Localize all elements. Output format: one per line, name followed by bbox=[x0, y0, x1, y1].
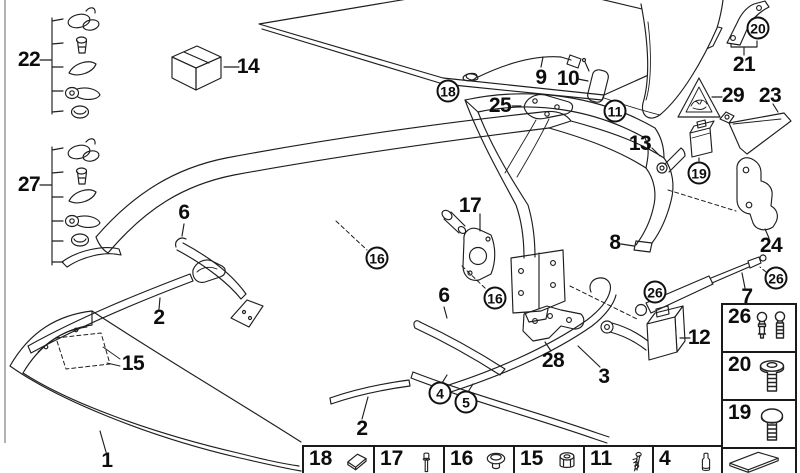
parts-diagram-page: 2227149102513212923824712661721523281181… bbox=[0, 0, 800, 473]
legend-cell-16: 16 bbox=[443, 445, 513, 473]
part-label-1: 1 bbox=[101, 449, 112, 473]
part-label-25: 25 bbox=[489, 94, 511, 118]
flange-screw-icon bbox=[752, 355, 792, 402]
part-label-24: 24 bbox=[760, 234, 782, 258]
bolt-icon bbox=[416, 449, 440, 473]
part-label-6: 6 bbox=[438, 284, 449, 308]
circled-label-11: 11 bbox=[604, 100, 627, 123]
legend-cell-20: 20 bbox=[723, 353, 795, 401]
part-label-9: 9 bbox=[535, 66, 546, 90]
part-label-29: 29 bbox=[722, 84, 744, 108]
part-label-6: 6 bbox=[178, 201, 189, 225]
legend-cell-11: 11 bbox=[583, 445, 652, 473]
circled-label-19: 19 bbox=[688, 162, 711, 185]
circled-label-4: 4 bbox=[429, 382, 452, 405]
legend-cell-wedge bbox=[723, 449, 795, 473]
legend-cell-17: 17 bbox=[373, 445, 443, 473]
part-label-8: 8 bbox=[609, 231, 620, 255]
part-label-2: 2 bbox=[153, 306, 164, 330]
legend-number: 16 bbox=[450, 447, 473, 471]
callout-labels-layer: 2227149102513212923824712661721523281181… bbox=[0, 0, 800, 473]
dome-plug-icon bbox=[482, 449, 510, 473]
circled-label-26: 26 bbox=[644, 281, 667, 304]
part-label-3: 3 bbox=[598, 365, 609, 389]
part-label-13: 13 bbox=[629, 132, 651, 156]
legend-number: 26 bbox=[728, 305, 751, 329]
legend-cell-18: 18 bbox=[302, 445, 373, 473]
legend-number: 15 bbox=[520, 447, 543, 471]
legend-right-column: 262019 bbox=[721, 303, 797, 473]
part-label-12: 12 bbox=[688, 326, 710, 350]
circled-label-16: 16 bbox=[484, 287, 507, 310]
pin-icon bbox=[694, 449, 718, 473]
legend-number: 11 bbox=[590, 447, 612, 471]
legend-number: 4 bbox=[659, 447, 671, 471]
circled-label-18: 18 bbox=[437, 80, 460, 103]
legend-number: 20 bbox=[728, 353, 751, 377]
ball-studs-icon bbox=[750, 307, 792, 354]
legend-cell-26: 26 bbox=[723, 305, 795, 353]
part-label-10: 10 bbox=[557, 67, 579, 91]
legend-cell-4: 4 bbox=[652, 445, 721, 473]
legend-number: 18 bbox=[309, 447, 332, 471]
part-label-15: 15 bbox=[122, 352, 144, 376]
part-label-27: 27 bbox=[18, 173, 40, 197]
part-label-14: 14 bbox=[237, 55, 259, 79]
part-label-17: 17 bbox=[459, 194, 481, 218]
circled-label-26: 26 bbox=[765, 267, 788, 290]
part-label-21: 21 bbox=[733, 53, 755, 77]
grommet-icon bbox=[554, 449, 580, 473]
wedge-icon bbox=[721, 449, 787, 473]
legend-number: 17 bbox=[380, 447, 403, 471]
spring-pin-icon bbox=[625, 449, 649, 473]
circled-label-20: 20 bbox=[747, 17, 770, 40]
round-screw-icon bbox=[752, 403, 792, 450]
circled-label-16: 16 bbox=[366, 247, 389, 270]
part-label-22: 22 bbox=[18, 48, 40, 72]
legend-cell-19: 19 bbox=[723, 401, 795, 449]
legend-number: 19 bbox=[728, 401, 751, 425]
circled-label-5: 5 bbox=[455, 391, 478, 414]
legend-bottom-row: 18171615114 bbox=[302, 445, 721, 473]
legend-cell-15: 15 bbox=[513, 445, 583, 473]
part-label-28: 28 bbox=[542, 349, 564, 373]
part-label-23: 23 bbox=[759, 84, 781, 108]
pad-icon bbox=[343, 449, 370, 473]
part-label-2: 2 bbox=[356, 417, 367, 441]
